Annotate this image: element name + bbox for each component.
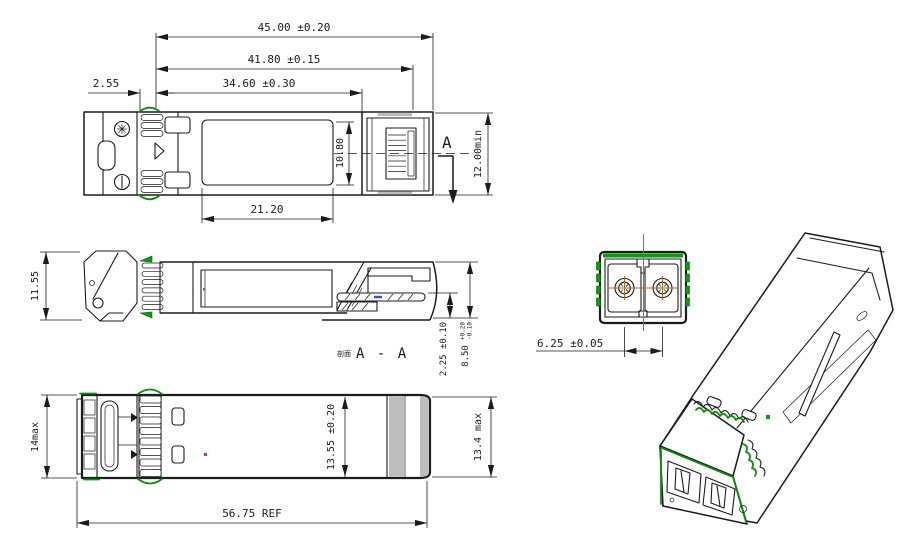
bail-notch [98, 141, 115, 170]
bottom-view: 14max 13.55 ±0.20 13.4 max 56.75 REF [30, 390, 497, 529]
dim-text: 2.55 [93, 77, 120, 90]
dim-tol-dn: -0.10 [467, 322, 474, 340]
cad-sheet: 45.00 ±0.20 41.80 ±0.15 34.60 ±0.30 2.55… [0, 0, 910, 547]
screw-slot-icon [115, 175, 130, 190]
emi-clip-bottom [141, 171, 163, 193]
side-view: 11.55 2.25 ±0.10 8.50 +0.20 -0.10 剖面 A -… [30, 251, 478, 376]
mark-purple [204, 453, 207, 456]
bottom-body-outline [82, 395, 430, 478]
mark-purple [203, 288, 206, 291]
dim-text: 34.60 ±0.30 [223, 77, 296, 90]
dim-mid-height: 13.55 ±0.20 [326, 397, 345, 477]
green-accent [138, 390, 162, 395]
dim-text: 10.80 [335, 138, 346, 168]
vent-hole [172, 446, 184, 463]
dim-text: 13.55 ±0.20 [326, 404, 337, 470]
dim-text: 21.20 [250, 203, 283, 216]
front-block [84, 395, 138, 478]
dim-rear-height: 13.4 max [432, 397, 497, 477]
dim-offset: 2.55 [88, 77, 174, 110]
dim-text: 12.00min [473, 130, 484, 178]
rear-end [387, 395, 429, 478]
green-accent [140, 256, 152, 262]
dim-text: 56.75 REF [222, 507, 282, 520]
dim-body-length: 34.60 ±0.30 [156, 77, 362, 112]
dim-text: 45.00 ±0.20 [258, 21, 331, 34]
section-label: 剖面 A - A [337, 346, 408, 362]
bail-latch [84, 251, 137, 321]
dim-text: 41.80 ±0.15 [248, 53, 321, 66]
green-accent [766, 415, 770, 419]
front-view: 6.25 ±0.05 [536, 234, 690, 357]
dim-ferrule-pitch: 6.25 ±0.05 [536, 327, 663, 357]
dim-text: 11.55 [30, 271, 41, 301]
screw-phillips-icon [115, 122, 130, 137]
dim-tol-up: +0.20 [460, 322, 467, 340]
section-arrow: A [438, 133, 458, 204]
green-accent [138, 479, 162, 484]
dim-label-width: 21.20 [202, 188, 333, 223]
section-marker-text: A [442, 133, 452, 152]
dim-text: 14max [30, 422, 41, 452]
dim-text: 2.25 ±0.10 [439, 322, 449, 376]
dim-text: 6.25 ±0.05 [537, 337, 603, 350]
label-recess [202, 120, 333, 185]
emi-clip-top [141, 115, 163, 137]
dim-text: 13.4 max [473, 413, 484, 461]
side-body [160, 262, 437, 320]
iso-view [660, 233, 893, 524]
dim-side-height: 11.55 [30, 252, 82, 320]
green-accent [140, 312, 152, 318]
vent-hole [172, 408, 184, 425]
dim-front-height: 14max [30, 395, 77, 478]
section-label-cn: 剖面 [337, 349, 351, 358]
latch-slot [101, 401, 118, 471]
dim-overall-ref: 56.75 REF [77, 481, 427, 528]
dim-port-height: 12.00min [435, 113, 493, 195]
section-label-aa: A - A [356, 346, 408, 362]
orientation-triangle [155, 143, 164, 159]
dim-text: 8.50 [461, 345, 471, 367]
top-view: 45.00 ±0.20 41.80 ±0.15 34.60 ±0.30 2.55… [84, 21, 493, 223]
